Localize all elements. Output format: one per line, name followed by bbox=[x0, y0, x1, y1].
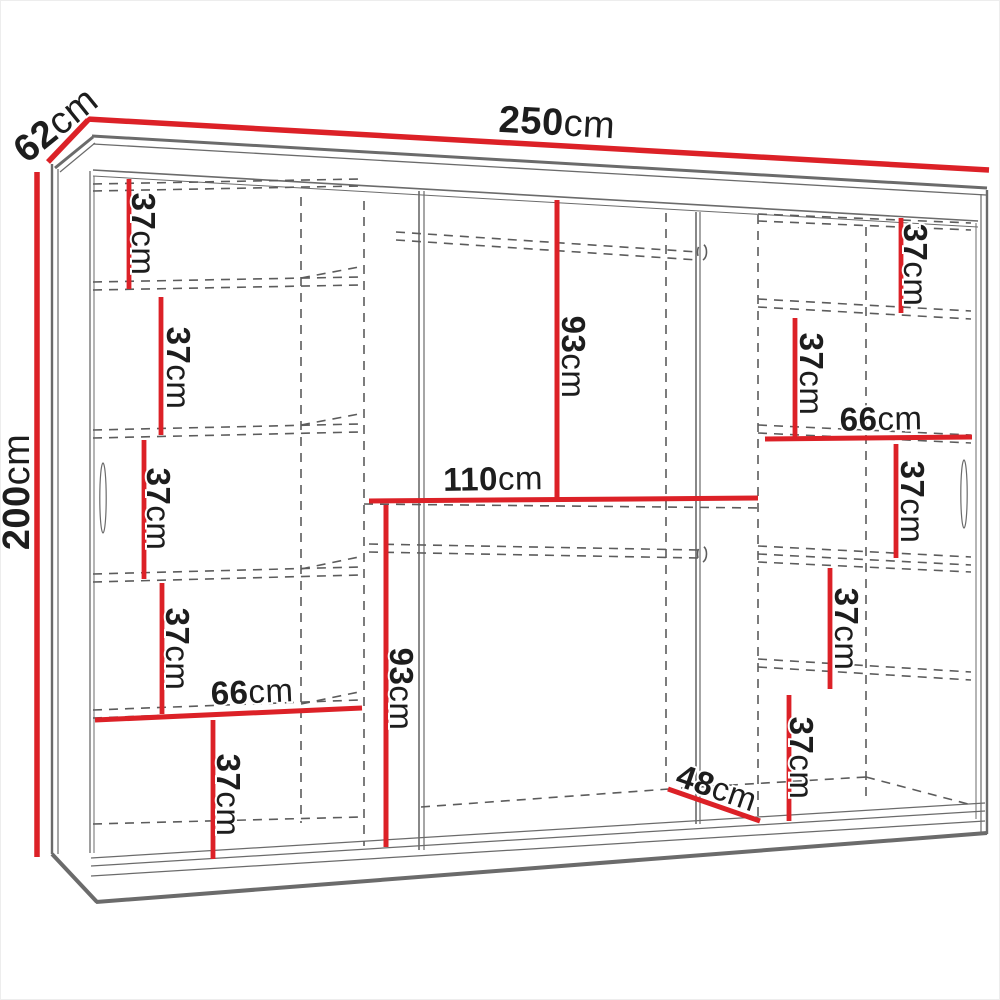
dim-label-height-200: 200cm bbox=[1, 434, 38, 551]
dim-label-right-width-66: 66cm bbox=[839, 399, 922, 437]
dim-label-right-shelf-5: 37cm bbox=[784, 717, 821, 800]
dim-label-middle-lower-93: 93cm bbox=[384, 648, 421, 731]
wardrobe-diagram-page: 250cm 62cm 200cm 37cm 37cm 37cm 37cm 66c… bbox=[0, 0, 1000, 1000]
dim-label-left-shelf-4: 37cm bbox=[160, 608, 197, 691]
right-door-handle bbox=[961, 460, 967, 528]
dim-label-left-shelf-1: 37cm bbox=[126, 193, 163, 276]
dim-label-right-shelf-4: 37cm bbox=[829, 588, 866, 671]
wardrobe-dimension-drawing: 250cm 62cm 200cm 37cm 37cm 37cm 37cm 66c… bbox=[1, 1, 1000, 1000]
dim-label-width-250: 250cm bbox=[498, 99, 617, 147]
dim-label-right-shelf-3: 37cm bbox=[895, 461, 932, 544]
dim-line-right-width-66 bbox=[765, 437, 972, 439]
dim-label-left-shelf-3: 37cm bbox=[141, 468, 178, 551]
dim-label-middle-hang-93: 93cm bbox=[556, 316, 593, 399]
dim-line-middle-width-110 bbox=[369, 498, 758, 501]
dim-label-right-shelf-2: 37cm bbox=[794, 333, 831, 416]
dim-label-left-shelf-2: 37cm bbox=[161, 327, 198, 410]
lower-rail-bracket bbox=[698, 546, 707, 562]
upper-rail-bracket bbox=[698, 244, 707, 260]
wardrobe-structure-dashed bbox=[93, 179, 971, 846]
left-door-handle bbox=[100, 463, 106, 533]
dim-label-middle-width-110: 110cm bbox=[443, 459, 543, 498]
wardrobe-structure-solid bbox=[52, 136, 987, 902]
dim-label-right-shelf-1: 37cm bbox=[898, 224, 935, 307]
dim-label-left-shelf-5: 37cm bbox=[211, 754, 248, 837]
dim-label-left-width-66: 66cm bbox=[210, 671, 294, 712]
dimension-labels: 250cm 62cm 200cm 37cm 37cm 37cm 37cm 66c… bbox=[1, 79, 935, 837]
